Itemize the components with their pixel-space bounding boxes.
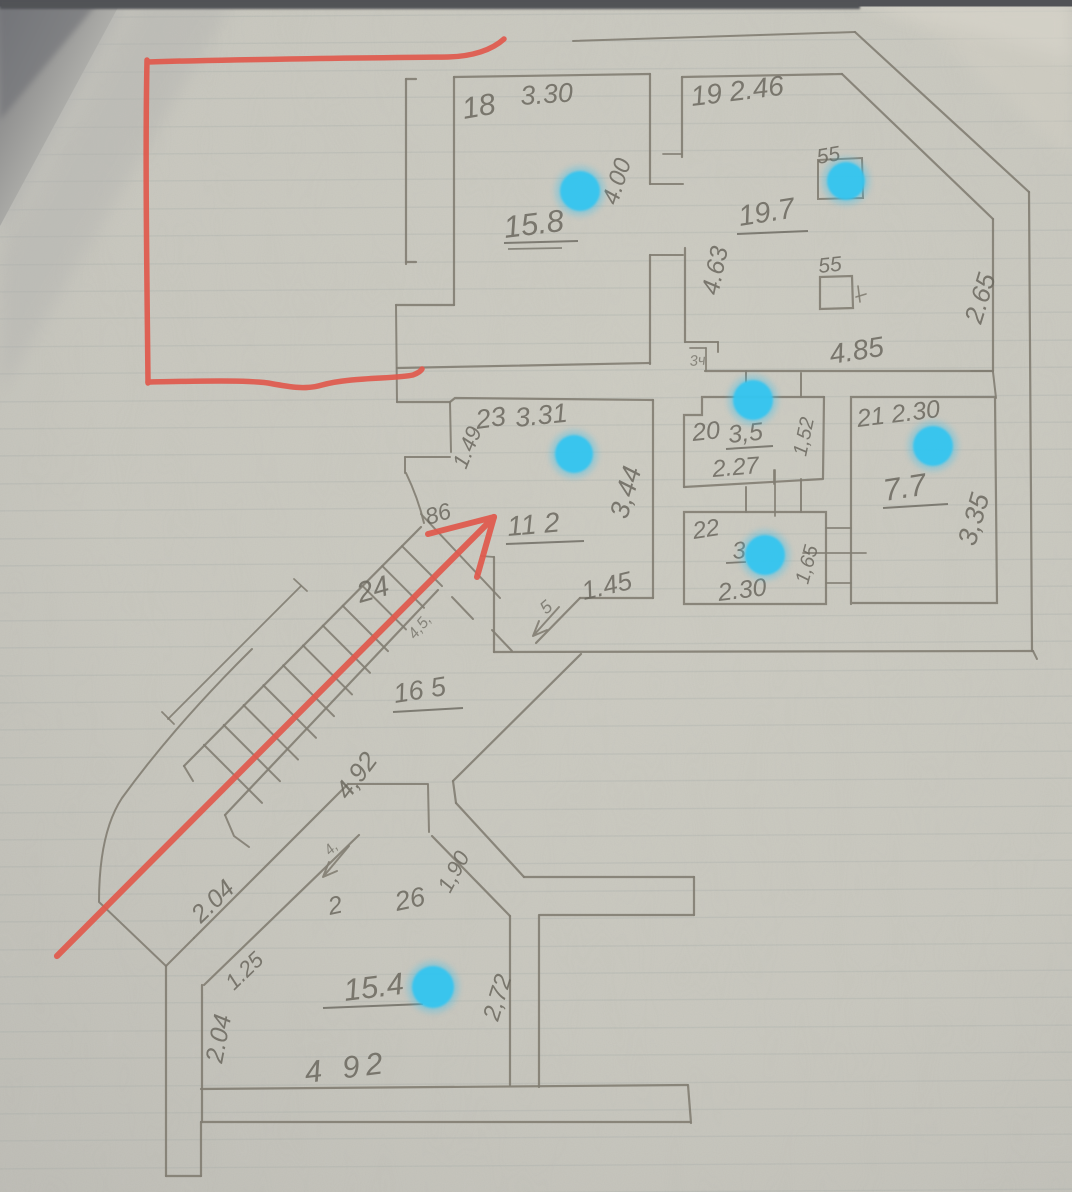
svg-text:15.4: 15.4 bbox=[342, 966, 406, 1008]
svg-text:3.30: 3.30 bbox=[519, 77, 574, 111]
svg-text:18: 18 bbox=[459, 88, 498, 126]
svg-text:3ч: 3ч bbox=[689, 352, 707, 370]
svg-text:55: 55 bbox=[817, 253, 843, 278]
svg-text:2.27: 2.27 bbox=[710, 452, 762, 483]
svg-text:15.8: 15.8 bbox=[502, 203, 567, 245]
svg-text:3.31: 3.31 bbox=[513, 398, 568, 433]
svg-text:22: 22 bbox=[690, 514, 722, 545]
svg-text:7.7: 7.7 bbox=[881, 466, 931, 508]
svg-text:20: 20 bbox=[690, 416, 722, 447]
svg-text:11 2: 11 2 bbox=[506, 506, 561, 541]
